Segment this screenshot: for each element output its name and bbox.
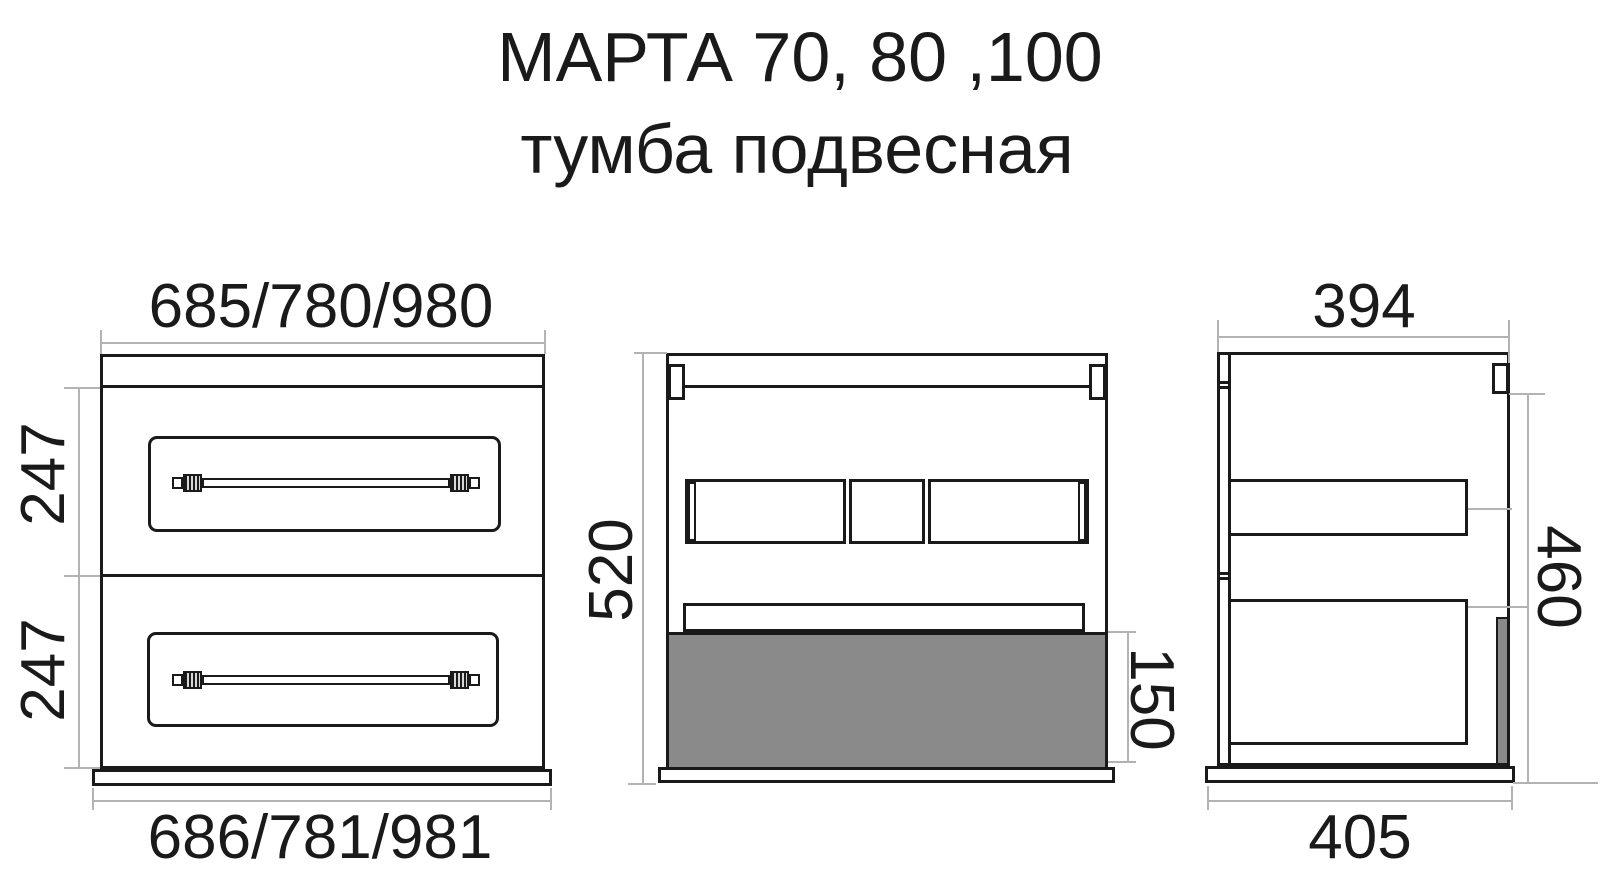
- handle-end-cap-left: [172, 477, 183, 489]
- section-band-end-strip-right: [1078, 482, 1086, 541]
- section-gray-bottom-panel: [669, 632, 1105, 767]
- front-top-rail-line: [100, 385, 545, 388]
- section-bracket-right: [1089, 364, 1106, 400]
- handle-knob-left: [183, 671, 202, 689]
- side-plinth: [1205, 766, 1515, 783]
- drawing-title-line1: МАРТА 70, 80 ,100: [497, 22, 1102, 92]
- side-front-gap-line: [1217, 577, 1231, 580]
- side-drawer1-profile: [1228, 479, 1468, 536]
- front-dim-extension-line: [92, 788, 94, 810]
- side-dim-line-depth-bottom: [1207, 800, 1513, 802]
- side-dim-extension-line: [1207, 786, 1209, 810]
- front-dim-extension-line: [550, 788, 552, 810]
- side-dim-label-depth-top: 394: [1312, 276, 1415, 338]
- front-dim-line-drawer-heights: [78, 388, 80, 768]
- handle-bar: [202, 478, 450, 488]
- side-front-gap-line: [1217, 381, 1231, 384]
- handle-knob-right: [450, 474, 469, 492]
- drawing-title-line2: тумба подвесная: [520, 114, 1073, 184]
- side-bracket: [1492, 363, 1509, 394]
- front-dim-label-width-bottom: 686/781/981: [148, 807, 493, 869]
- side-dim-extension-line: [1468, 606, 1528, 608]
- handle-bar: [202, 675, 450, 685]
- side-dim-extension-line: [1511, 786, 1513, 810]
- side-drawer2-profile: [1228, 599, 1468, 745]
- section-dim-tick: [634, 352, 667, 354]
- section-shelf-band: [685, 479, 1089, 544]
- front-drawer-divider-line: [100, 574, 545, 577]
- front-dim-label-drawer1-height: 247: [13, 422, 75, 525]
- section-band-divider: [922, 479, 931, 544]
- section-drawer-rim: [683, 603, 1085, 632]
- side-dim-label-depth-bottom: 405: [1308, 807, 1411, 869]
- side-dim-extension-line: [1468, 508, 1512, 510]
- side-dim-tick: [1513, 782, 1598, 784]
- side-front-gap-line: [1217, 386, 1231, 389]
- front-dim-line-width-bottom: [92, 800, 552, 802]
- section-bracket-left: [668, 364, 685, 400]
- section-dim-tick: [1108, 761, 1136, 763]
- front-dim-tick: [64, 767, 100, 769]
- side-gray-back-strip: [1496, 617, 1509, 765]
- front-plinth: [92, 769, 552, 786]
- handle-end-cap-right: [469, 674, 480, 686]
- side-front-gap-line: [1217, 572, 1231, 575]
- side-dim-label-height: 460: [1527, 525, 1589, 628]
- section-plinth: [658, 767, 1115, 783]
- front-dim-tick: [64, 387, 100, 389]
- handle-knob-right: [450, 671, 469, 689]
- handle-knob-left: [183, 474, 202, 492]
- front-dim-tick: [64, 575, 100, 577]
- section-dim-label-height: 520: [581, 518, 643, 621]
- front-dim-line-width-top: [100, 342, 545, 344]
- section-band-end-strip-left: [688, 482, 696, 541]
- front-dim-label-width-top: 685/780/980: [149, 276, 494, 338]
- section-band-divider: [843, 479, 852, 544]
- section-dim-tick: [1108, 631, 1136, 633]
- handle-end-cap-right: [469, 477, 480, 489]
- side-dim-extension-line: [1508, 320, 1510, 363]
- section-dim-label-bottom-panel: 150: [1120, 647, 1182, 750]
- section-hanging-rail-line: [684, 385, 1090, 388]
- front-dim-label-drawer2-height: 247: [13, 618, 75, 721]
- technical-drawing-canvas: МАРТА 70, 80 ,100 тумба подвесная: [0, 0, 1600, 891]
- handle-end-cap-left: [172, 674, 183, 686]
